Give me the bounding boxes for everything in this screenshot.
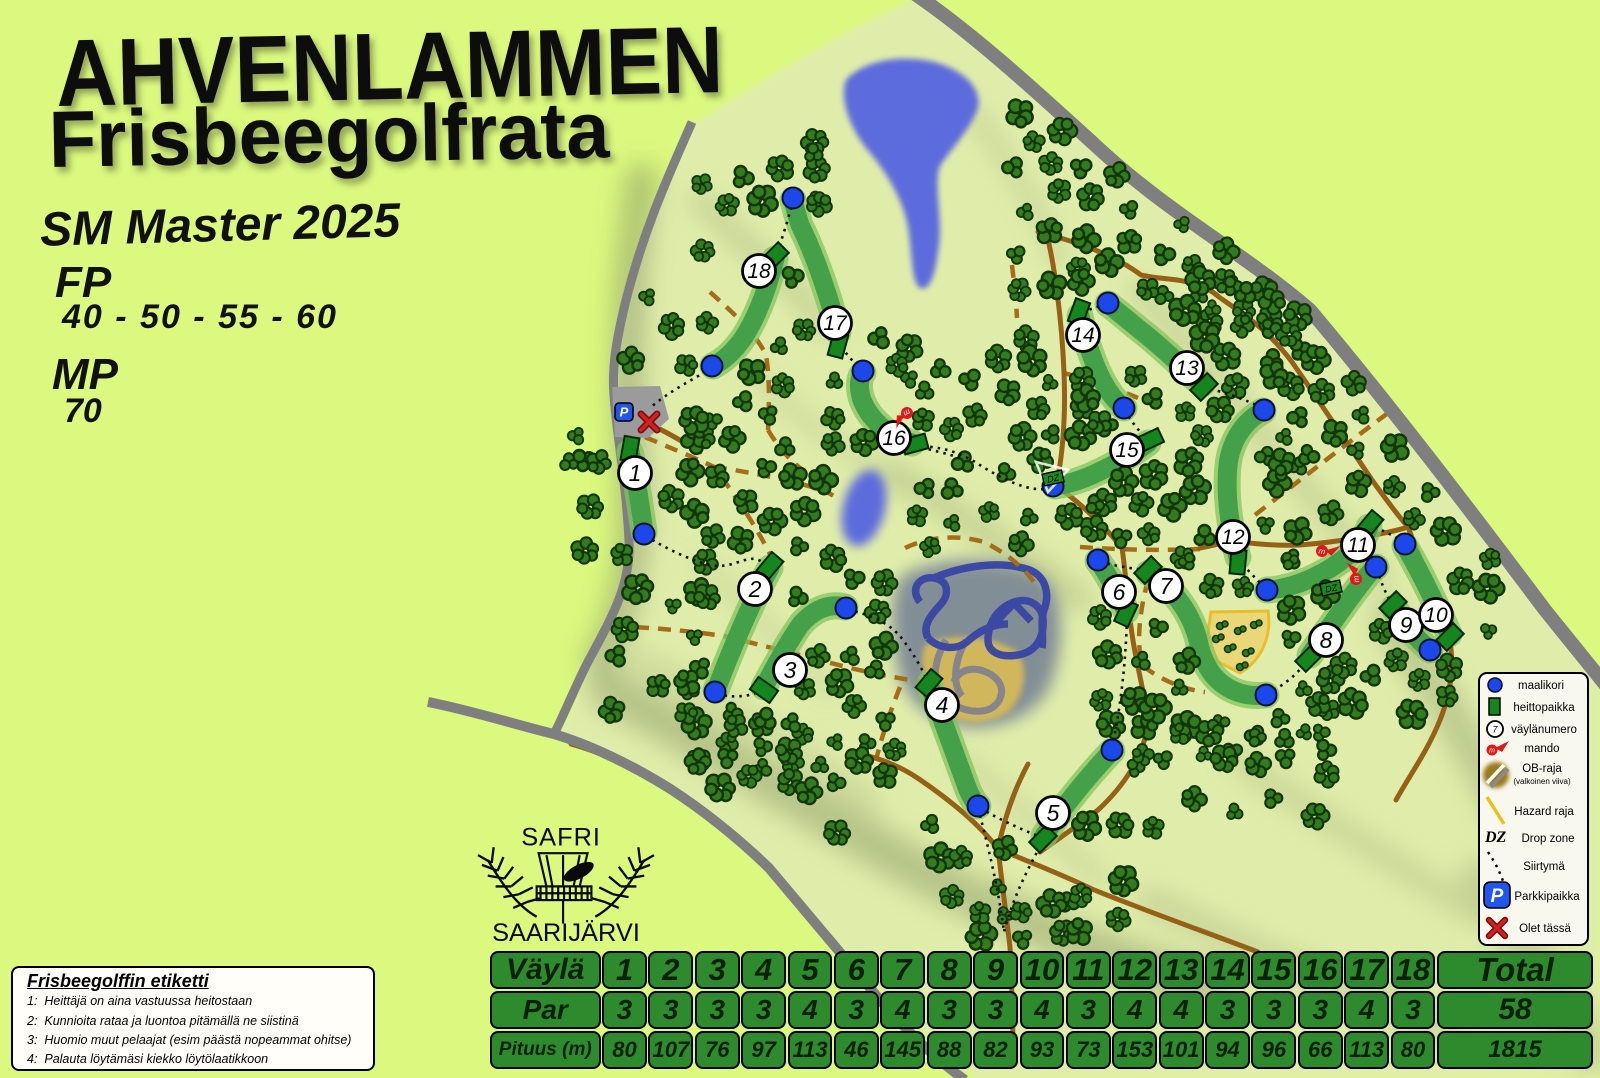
svg-text:heittopaikka: heittopaikka [1513,702,1575,714]
svg-text:2: 2 [748,576,762,602]
svg-text:18: 18 [747,260,771,283]
svg-text:15: 15 [1115,439,1139,462]
svg-text:17: 17 [823,312,848,335]
svg-text:13: 13 [1175,357,1199,380]
svg-text:OB-raja: OB-raja [1522,763,1562,775]
svg-text:10: 10 [1424,604,1448,627]
svg-text:m: m [1351,575,1361,583]
svg-text:SAFRI: SAFRI [521,823,601,851]
svg-text:1: 1 [629,460,642,486]
svg-text:5: 5 [1047,800,1060,826]
svg-text:SAARIJÄRVI: SAARIJÄRVI [492,919,640,947]
svg-text:Olet tässä: Olet tässä [1519,923,1571,935]
svg-text:m: m [1489,748,1495,755]
svg-text:(valkoinen viiva): (valkoinen viiva) [1513,777,1571,786]
svg-text:Parkkipaikka: Parkkipaikka [1514,891,1580,903]
svg-text:6: 6 [1113,579,1126,605]
svg-text:mando: mando [1524,743,1559,755]
svg-text:12: 12 [1221,526,1245,549]
svg-text:P: P [620,405,629,420]
svg-text:14: 14 [1071,324,1094,347]
svg-text:P: P [1491,886,1504,907]
svg-text:16: 16 [882,427,906,450]
svg-text:DZ: DZ [1484,829,1507,846]
svg-text:3: 3 [784,657,797,683]
svg-text:11: 11 [1347,534,1369,557]
svg-text:maalikori: maalikori [1518,680,1564,692]
svg-text:9: 9 [1400,612,1413,638]
svg-text:väylänumero: väylänumero [1511,724,1577,736]
svg-text:Hazard raja: Hazard raja [1514,806,1574,818]
svg-text:7: 7 [1160,573,1174,599]
svg-text:Drop zone: Drop zone [1521,833,1574,845]
svg-text:Siirtymä: Siirtymä [1523,861,1565,873]
svg-text:4: 4 [936,692,949,718]
svg-text:8: 8 [1320,627,1333,653]
